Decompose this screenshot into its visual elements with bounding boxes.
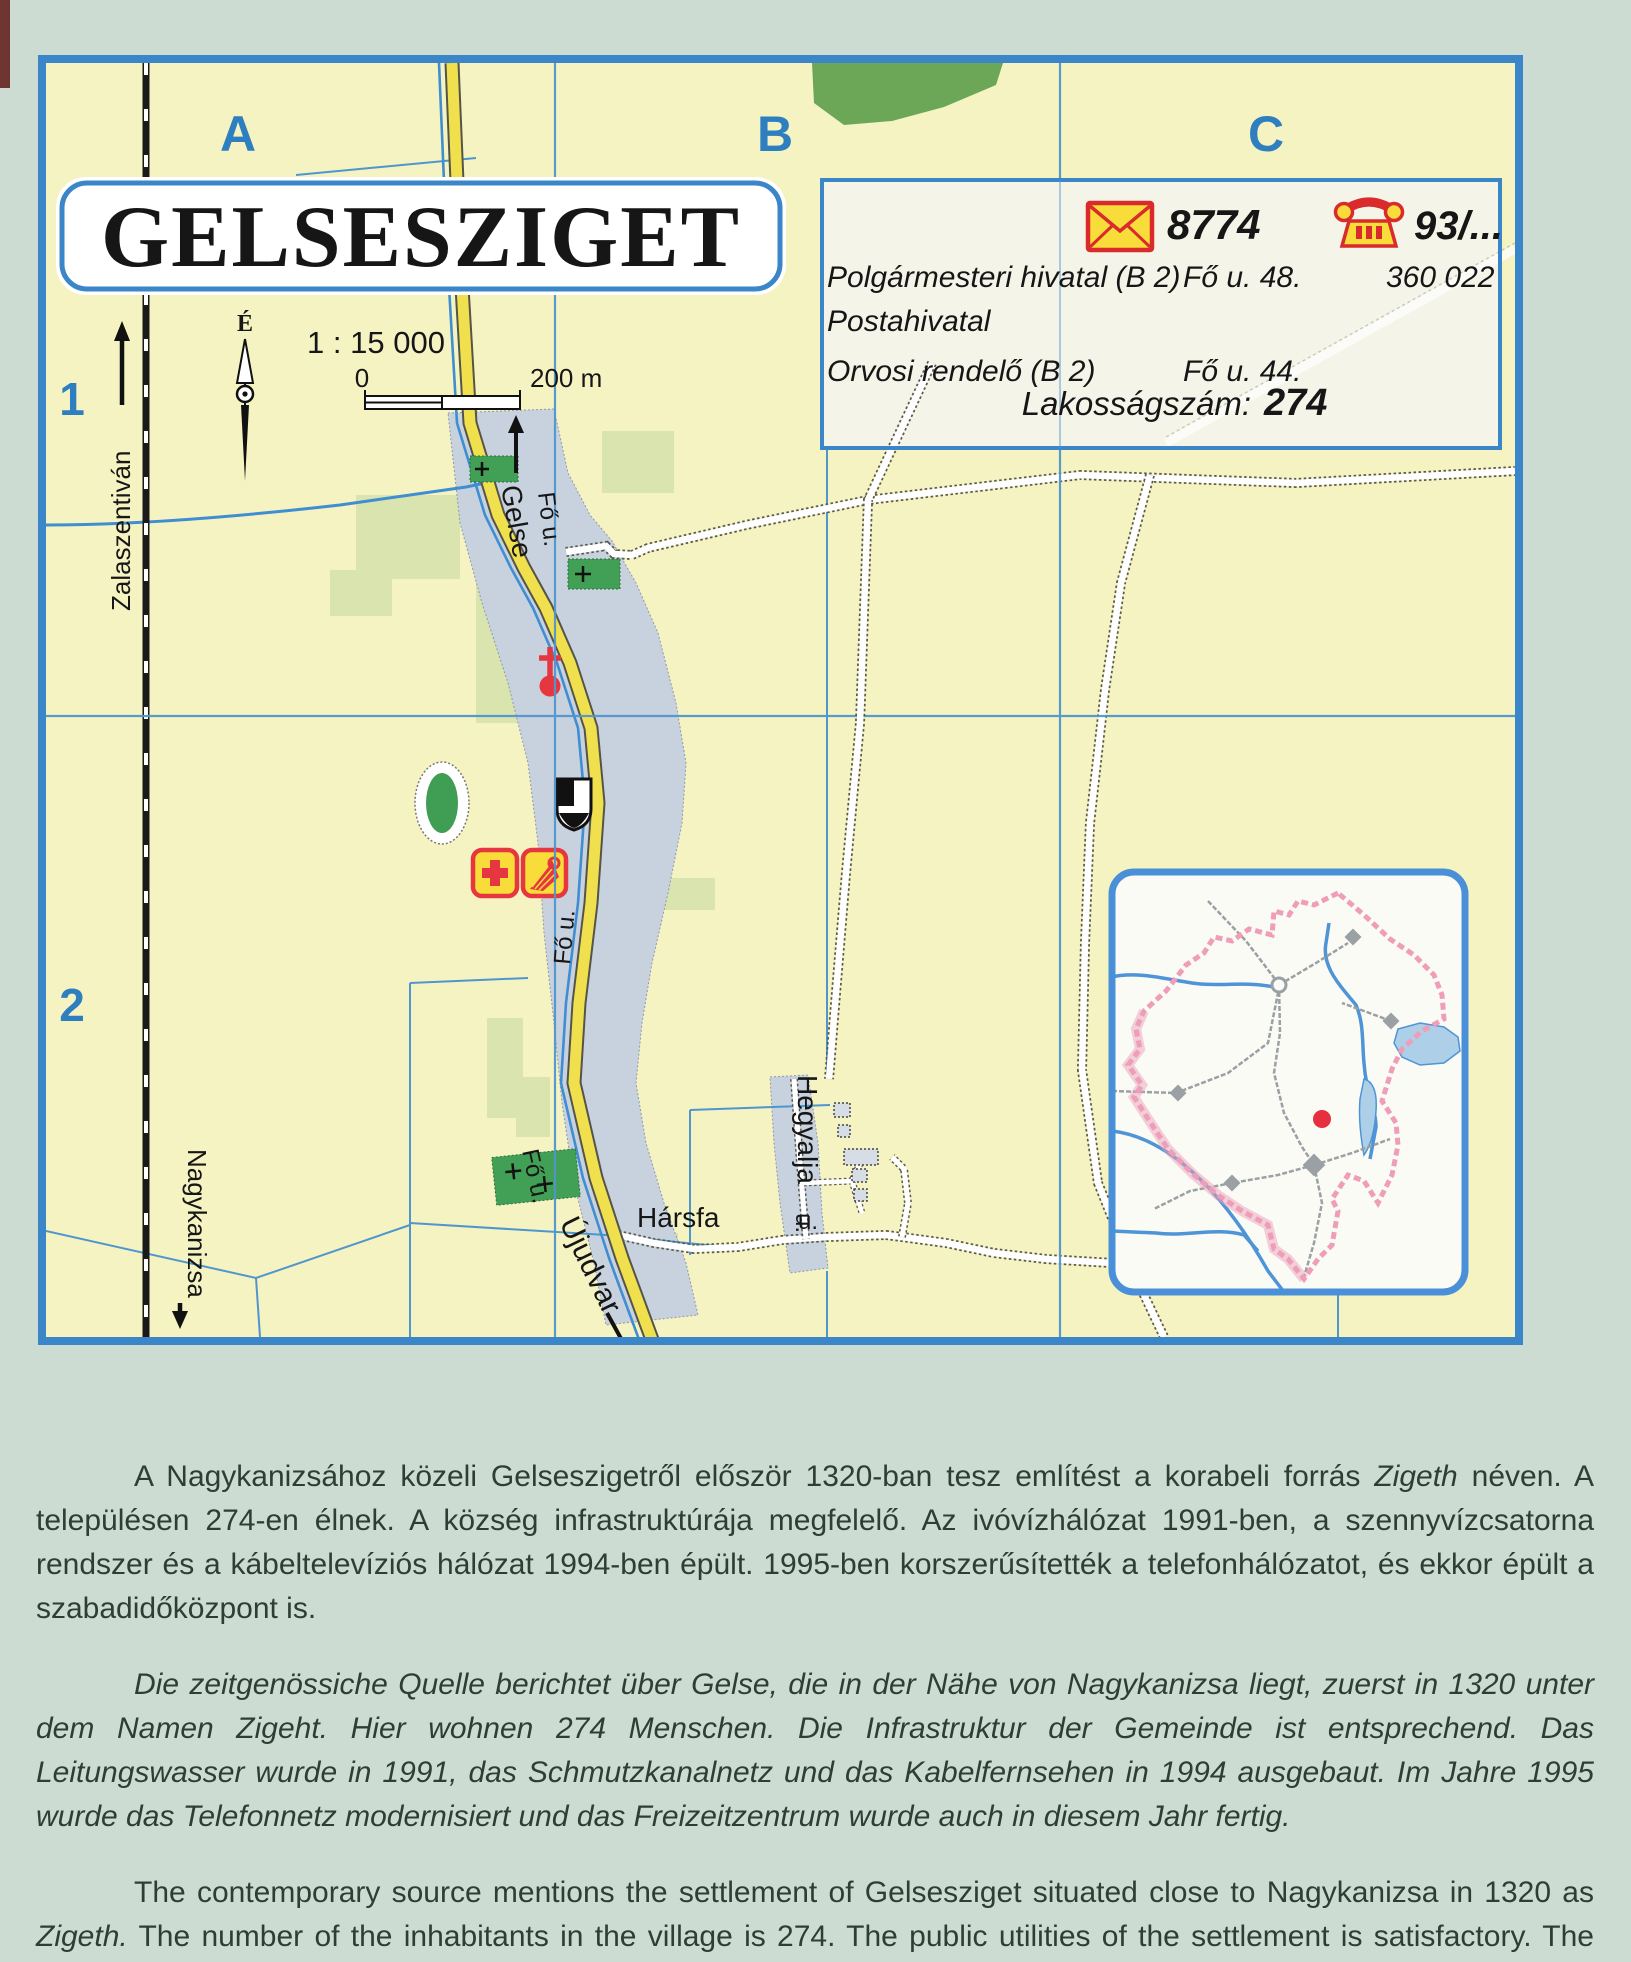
village-map-svg: GELSESZIGET bbox=[46, 63, 1515, 1337]
postal-code: 8774 bbox=[1167, 201, 1260, 248]
entry-address: Fő u. 48. bbox=[1183, 261, 1301, 294]
entry-name: Orvosi rendelő (B 2) bbox=[827, 355, 1095, 388]
north-letter: É bbox=[237, 311, 253, 337]
cemetery-mid bbox=[568, 559, 620, 589]
hu-italic-name: Zigeth bbox=[1374, 1460, 1457, 1493]
map-title: GELSESZIGET bbox=[101, 189, 741, 286]
inset-junction-ring bbox=[1272, 978, 1286, 992]
scale-ratio: 1 : 15 000 bbox=[307, 325, 445, 360]
entry-name: Polgármesteri hivatal (B 2) bbox=[827, 261, 1180, 294]
entry-name: Postahivatal bbox=[827, 305, 992, 338]
population-value: 274 bbox=[1263, 382, 1327, 424]
description-block: A Nagykanizsához közeli Gelseszigetről e… bbox=[36, 1455, 1594, 1962]
street-label-fo-utca: Fő u. bbox=[549, 909, 581, 966]
en-text: The contemporary source mentions the set… bbox=[134, 1876, 1594, 1909]
street-label-harsfa: Hársfa bbox=[637, 1202, 720, 1233]
grid-row-1: 1 bbox=[59, 373, 85, 425]
rail-destination-bottom: Nagykanizsa bbox=[182, 1149, 212, 1298]
red-cross-icon bbox=[473, 850, 517, 896]
atlas-page: GELSESZIGET bbox=[0, 0, 1631, 1962]
en-text: The number of the inhabitants in the vil… bbox=[36, 1920, 1594, 1962]
de-text: Die zeitgenössiche Quelle berichtet über… bbox=[36, 1668, 1594, 1833]
phone-prefix: 93/... bbox=[1414, 204, 1503, 248]
shield-icon bbox=[557, 779, 591, 830]
en-italic-name: Zigeth. bbox=[36, 1920, 128, 1953]
street-label-u: u. bbox=[790, 1213, 817, 1233]
rail-destination-top: Zalaszentiván bbox=[106, 451, 136, 611]
paragraph-hungarian: A Nagykanizsához közeli Gelseszigetről e… bbox=[36, 1455, 1594, 1631]
inset-location-dot bbox=[1313, 1110, 1331, 1128]
map-panel: GELSESZIGET bbox=[38, 55, 1523, 1345]
cemetery-top bbox=[470, 456, 518, 482]
scale-end: 200 m bbox=[530, 363, 602, 393]
envelope-icon bbox=[1088, 203, 1152, 250]
grid-column-a: A bbox=[220, 106, 256, 162]
grid-column-c: C bbox=[1248, 106, 1284, 162]
grid-column-b: B bbox=[757, 106, 793, 162]
scan-artifact bbox=[0, 0, 10, 88]
posthorn-icon bbox=[523, 850, 566, 896]
inset-map bbox=[1112, 872, 1465, 1292]
paragraph-german: Die zeitgenössiche Quelle berichtet über… bbox=[36, 1663, 1594, 1839]
entry-phone: 360 022 bbox=[1386, 261, 1495, 294]
sports-oval-icon bbox=[415, 762, 469, 844]
paragraph-english: The contemporary source mentions the set… bbox=[36, 1871, 1594, 1962]
grid-row-2: 2 bbox=[59, 979, 85, 1031]
population-label: Lakosságszám: bbox=[1022, 385, 1251, 422]
title-box: GELSESZIGET bbox=[56, 177, 786, 295]
scale-zero: 0 bbox=[355, 363, 369, 393]
hu-text: A Nagykanizsához közeli Gelseszigetről e… bbox=[134, 1460, 1374, 1493]
street-label-hegyalja: Hegyalja bbox=[792, 1075, 823, 1184]
